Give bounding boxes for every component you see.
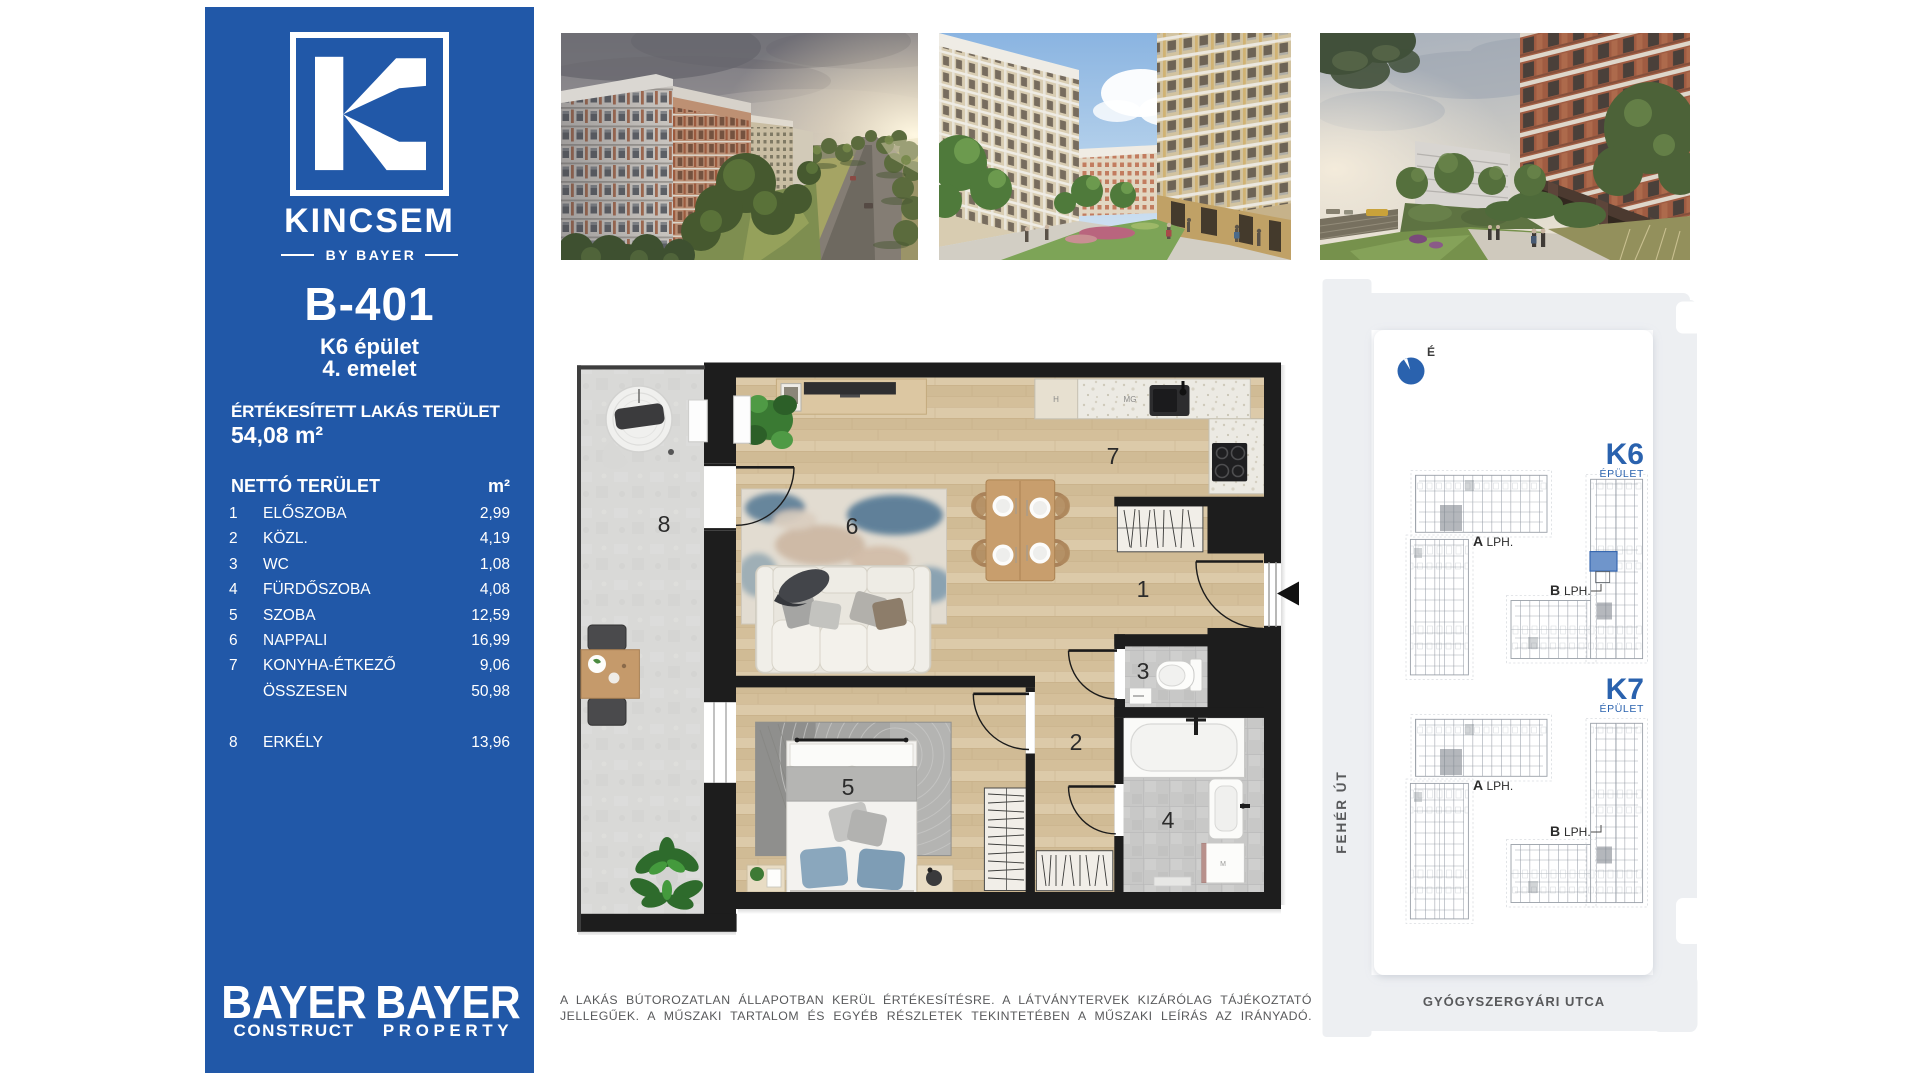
svg-text:M: M (1220, 861, 1226, 868)
svg-text:ÉPÜLET: ÉPÜLET (1600, 467, 1644, 480)
svg-text:MG: MG (1124, 395, 1137, 404)
svg-text:2: 2 (1070, 729, 1083, 755)
svg-text:B LPH.: B LPH. (1550, 582, 1591, 598)
svg-text:CONSTRUCT: CONSTRUCT (233, 1021, 354, 1040)
svg-text:ÉPÜLET: ÉPÜLET (1600, 702, 1644, 715)
svg-text:FEHÉR ÚT: FEHÉR ÚT (1334, 770, 1349, 854)
svg-text:A LPH.: A LPH. (1473, 533, 1513, 549)
svg-text:GYÓGYSZERGYÁRI UTCA: GYÓGYSZERGYÁRI UTCA (1423, 994, 1605, 1009)
svg-text:K6: K6 (1606, 438, 1644, 471)
svg-text:4: 4 (1162, 807, 1175, 833)
svg-text:8: 8 (658, 511, 671, 537)
svg-text:3: 3 (1137, 658, 1150, 684)
svg-text:1: 1 (1137, 576, 1150, 602)
svg-text:K7: K7 (1606, 673, 1644, 706)
svg-text:H: H (1053, 395, 1059, 404)
svg-text:7: 7 (1107, 443, 1120, 469)
svg-text:É: É (1427, 344, 1435, 359)
svg-text:6: 6 (846, 513, 859, 539)
svg-text:5: 5 (842, 774, 855, 800)
svg-text:A LPH.: A LPH. (1473, 777, 1513, 793)
svg-text:PROPERTY: PROPERTY (383, 1021, 513, 1040)
svg-text:B LPH.: B LPH. (1550, 823, 1591, 839)
